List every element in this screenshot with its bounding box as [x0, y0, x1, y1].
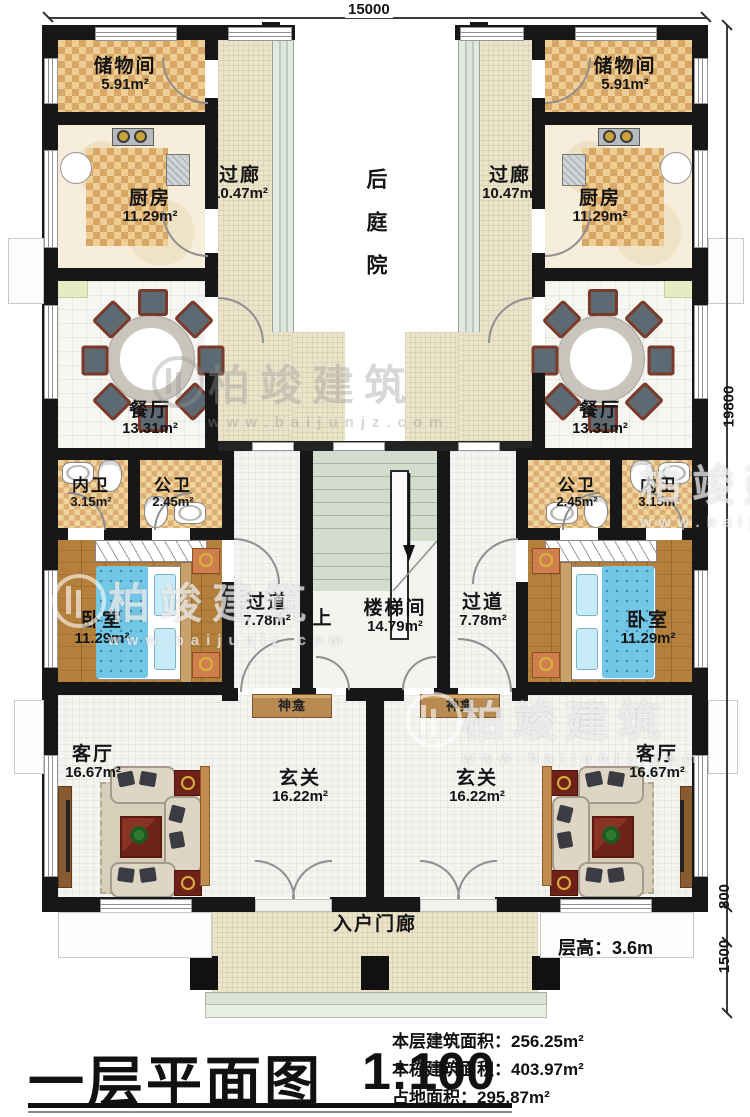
- room-area: 11.29m²: [95, 209, 205, 226]
- wall: [532, 98, 545, 125]
- porch-pillar: [532, 956, 560, 990]
- room-name: 卧室: [588, 610, 708, 631]
- room-area: 11.29m²: [588, 631, 708, 648]
- burner-icon: [620, 130, 633, 143]
- wall: [532, 40, 545, 60]
- window: [458, 442, 500, 451]
- dining-table-top-right: [569, 327, 633, 391]
- kitchen-sink-left: [60, 152, 92, 184]
- room-area: 16.22m²: [255, 789, 345, 806]
- floor-hall-patch-left: [292, 332, 345, 441]
- room-area: 10.47m²: [202, 186, 278, 203]
- area-line-building: 本栋建筑面积：403.97m²: [392, 1056, 692, 1084]
- room-name: 入户门廊: [300, 914, 450, 935]
- window: [228, 27, 292, 41]
- area-line-footprint: 占地面积：295.87m²: [392, 1084, 692, 1112]
- dining-chair: [82, 346, 109, 376]
- wall: [42, 682, 234, 695]
- label-courtyard: 后庭院: [360, 168, 390, 328]
- tv-icon: [680, 800, 684, 872]
- wall: [516, 448, 528, 528]
- sofa-pillow: [557, 831, 574, 849]
- wall: [222, 448, 234, 528]
- dim-right-height: 19800: [720, 386, 737, 428]
- wall: [516, 448, 708, 460]
- window: [694, 58, 708, 104]
- room-name: 过道: [222, 592, 312, 613]
- wall: [104, 528, 152, 540]
- room-area: 11.29m²: [42, 631, 162, 648]
- sofa-pillow: [585, 867, 603, 883]
- label-bath-public-right: 公卫2.45m²: [542, 476, 612, 510]
- porch-pillar: [361, 956, 389, 990]
- room-name: 客厅: [612, 744, 702, 765]
- label-dining-right: 餐厅13.31m²: [545, 400, 655, 438]
- exterior-ledge: [8, 238, 44, 304]
- room-area: 7.78m²: [438, 613, 528, 630]
- lamp-icon: [539, 553, 553, 567]
- burner-icon: [134, 130, 147, 143]
- window: [333, 442, 385, 451]
- floorplan-page: { "plan": { "dim_top": "15000", "dim_rig…: [0, 0, 750, 1117]
- room-area: 13.31m²: [95, 421, 205, 438]
- label-bath-inner-left: 内卫3.15m²: [56, 476, 126, 510]
- wall-foyer-divider: [366, 688, 384, 912]
- room-name: 厨房: [95, 188, 205, 209]
- room-name: 储物间: [570, 56, 680, 77]
- window: [100, 899, 192, 913]
- watermark-logo-bars: [66, 586, 71, 614]
- lamp-icon: [181, 876, 195, 890]
- room-name: 厨房: [545, 188, 655, 209]
- stair-up-text: 上: [306, 608, 340, 629]
- room-name: 客厅: [48, 744, 138, 765]
- label-foyer-right: 玄关16.22m²: [432, 768, 522, 806]
- wall: [212, 897, 255, 912]
- bed-headboard-right: [560, 562, 572, 684]
- area-label: 占地面积：: [392, 1088, 477, 1107]
- label-bath-public-left: 公卫2.45m²: [138, 476, 208, 510]
- floor-height-label: 层高：: [558, 938, 612, 958]
- room-area: 14.79m²: [340, 619, 450, 636]
- room-name: 内卫: [56, 476, 126, 495]
- floor-height-note: 层高：3.6m: [558, 934, 653, 960]
- wall: [222, 528, 234, 540]
- room-area: 3.15m²: [624, 495, 694, 510]
- wall: [205, 281, 218, 297]
- dim-step: 800: [716, 884, 733, 909]
- door-threshold: [420, 899, 497, 912]
- room-area: 11.29m²: [545, 209, 655, 226]
- wall: [516, 682, 708, 695]
- room-area: 13.31m²: [545, 421, 655, 438]
- side-terrace-left: [58, 912, 212, 958]
- wall: [682, 528, 708, 540]
- shrine-label: 神龛: [278, 698, 306, 713]
- sofa-pillow: [169, 831, 186, 849]
- window: [252, 442, 294, 451]
- dimension-line-right: [726, 25, 728, 1014]
- wall: [532, 373, 545, 448]
- room-area: 2.45m²: [138, 495, 208, 510]
- label-bedroom-right: 卧室11.29m²: [588, 610, 708, 648]
- dim-top-width: 15000: [345, 1, 393, 18]
- wall: [42, 528, 68, 540]
- wardrobe-right: [545, 540, 657, 562]
- wall: [205, 40, 218, 60]
- wall: [495, 897, 538, 912]
- label-kitchen-left: 厨房11.29m²: [95, 188, 205, 226]
- room-area: 16.67m²: [612, 765, 702, 782]
- wall: [42, 448, 234, 460]
- dining-chair: [138, 289, 168, 316]
- wall: [330, 897, 420, 912]
- area-line-floor: 本层建筑面积：256.25m²: [392, 1028, 692, 1056]
- wall: [598, 528, 646, 540]
- dining-chair: [648, 346, 675, 376]
- stair-arrow-graphic: [313, 451, 437, 688]
- wall: [300, 449, 313, 701]
- lamp-icon: [181, 776, 195, 790]
- area-summary: 本层建筑面积：256.25m² 本栋建筑面积：403.97m² 占地面积：295…: [392, 1028, 692, 1112]
- sofa-pillow: [139, 771, 157, 788]
- dining-chair: [588, 289, 618, 316]
- label-foyer-left: 玄关16.22m²: [255, 768, 345, 806]
- room-area: 5.91m²: [570, 77, 680, 94]
- lamp-icon: [539, 657, 553, 671]
- floor-hall-patch-right: [405, 332, 458, 441]
- screen-panel-right: [542, 766, 552, 886]
- room-area: 16.67m²: [48, 765, 138, 782]
- label-hallway-left: 过道7.78m²: [222, 592, 312, 630]
- tv-icon: [66, 800, 70, 872]
- room-name: 玄关: [432, 768, 522, 789]
- room-name: 玄关: [255, 768, 345, 789]
- porch-pillar: [190, 956, 218, 990]
- porch-step-2: [205, 1004, 547, 1018]
- room-area: 5.91m²: [70, 77, 180, 94]
- area-value: 295.87m²: [477, 1088, 550, 1107]
- sofa-pillow: [139, 867, 157, 883]
- room-name: 过廊: [472, 165, 548, 186]
- label-living-right: 客厅16.67m²: [612, 744, 702, 782]
- window: [44, 305, 58, 399]
- burner-icon: [117, 130, 130, 143]
- window: [575, 27, 657, 41]
- label-kitchen-right: 厨房11.29m²: [545, 188, 655, 226]
- room-name: 内卫: [624, 476, 694, 495]
- room-name: 过道: [438, 592, 528, 613]
- kitchen-appliance-right: [562, 154, 586, 186]
- label-corridor-left: 过廊10.47m²: [202, 165, 278, 203]
- wall: [532, 253, 545, 268]
- screen-panel-left: [200, 766, 210, 886]
- label-stairwell: 楼梯间14.79m²: [340, 598, 450, 636]
- window: [44, 58, 58, 104]
- label-storage-left: 储物间5.91m²: [70, 56, 180, 94]
- sofa-pillow: [117, 867, 135, 883]
- label-stair-up: 上: [306, 608, 340, 629]
- sofa-pillow: [607, 867, 625, 883]
- dining-chair: [532, 346, 559, 376]
- shrine-cabinet-left: 神龛: [252, 694, 332, 718]
- exterior-ledge: [14, 700, 44, 774]
- exterior-ledge: [708, 700, 738, 774]
- room-name: 楼梯间: [340, 598, 450, 619]
- burner-icon: [603, 130, 616, 143]
- room-name: 餐厅: [545, 400, 655, 421]
- area-value: 403.97m²: [511, 1060, 584, 1079]
- window: [95, 27, 177, 41]
- lamp-icon: [557, 776, 571, 790]
- plant-icon: [130, 826, 148, 844]
- room-name: 过廊: [202, 165, 278, 186]
- room-name: 公卫: [542, 476, 612, 495]
- watermark-logo-bars: [166, 368, 171, 394]
- wall: [437, 449, 450, 701]
- door-threshold: [255, 899, 332, 912]
- lamp-icon: [199, 553, 213, 567]
- label-porch: 入户门廊: [300, 914, 450, 935]
- label-bath-inner-right: 内卫3.15m²: [624, 476, 694, 510]
- window: [560, 899, 652, 913]
- kitchen-sink-right: [660, 152, 692, 184]
- area-label: 本层建筑面积：: [392, 1032, 511, 1051]
- room-area: 10.47m²: [472, 186, 548, 203]
- area-label: 本栋建筑面积：: [392, 1060, 511, 1079]
- wall: [545, 112, 692, 125]
- window: [694, 305, 708, 399]
- wall: [42, 268, 218, 281]
- wall: [222, 688, 238, 701]
- wall: [205, 373, 218, 448]
- plant-icon: [602, 826, 620, 844]
- window: [44, 150, 58, 248]
- dim-porch: 1500: [716, 940, 733, 973]
- room-name: 储物间: [70, 56, 180, 77]
- room-area: 7.78m²: [222, 613, 312, 630]
- room-name: 公卫: [138, 476, 208, 495]
- watermark-logo: [152, 356, 204, 408]
- label-hallway-right: 过道7.78m²: [438, 592, 528, 630]
- wardrobe-left: [95, 540, 207, 562]
- window: [460, 27, 524, 41]
- wall: [532, 268, 708, 281]
- room-area: 2.45m²: [542, 495, 612, 510]
- lamp-icon: [199, 657, 213, 671]
- wall: [532, 281, 545, 297]
- window: [694, 150, 708, 248]
- watermark-logo: [52, 574, 106, 628]
- label-corridor-right: 过廊10.47m²: [472, 165, 548, 203]
- lamp-icon: [557, 876, 571, 890]
- room-area: 3.15m²: [56, 495, 126, 510]
- area-value: 256.25m²: [511, 1032, 584, 1051]
- watermark-logo: [406, 692, 462, 748]
- wall: [58, 112, 205, 125]
- floor-height-value: 3.6m: [612, 938, 653, 958]
- bed-headboard-left: [180, 562, 192, 684]
- label-storage-right: 储物间5.91m²: [570, 56, 680, 94]
- label-living-left: 客厅16.67m²: [48, 744, 138, 782]
- kitchen-appliance-left: [166, 154, 190, 186]
- room-area: 16.22m²: [432, 789, 522, 806]
- watermark-logo-bars: [421, 705, 426, 733]
